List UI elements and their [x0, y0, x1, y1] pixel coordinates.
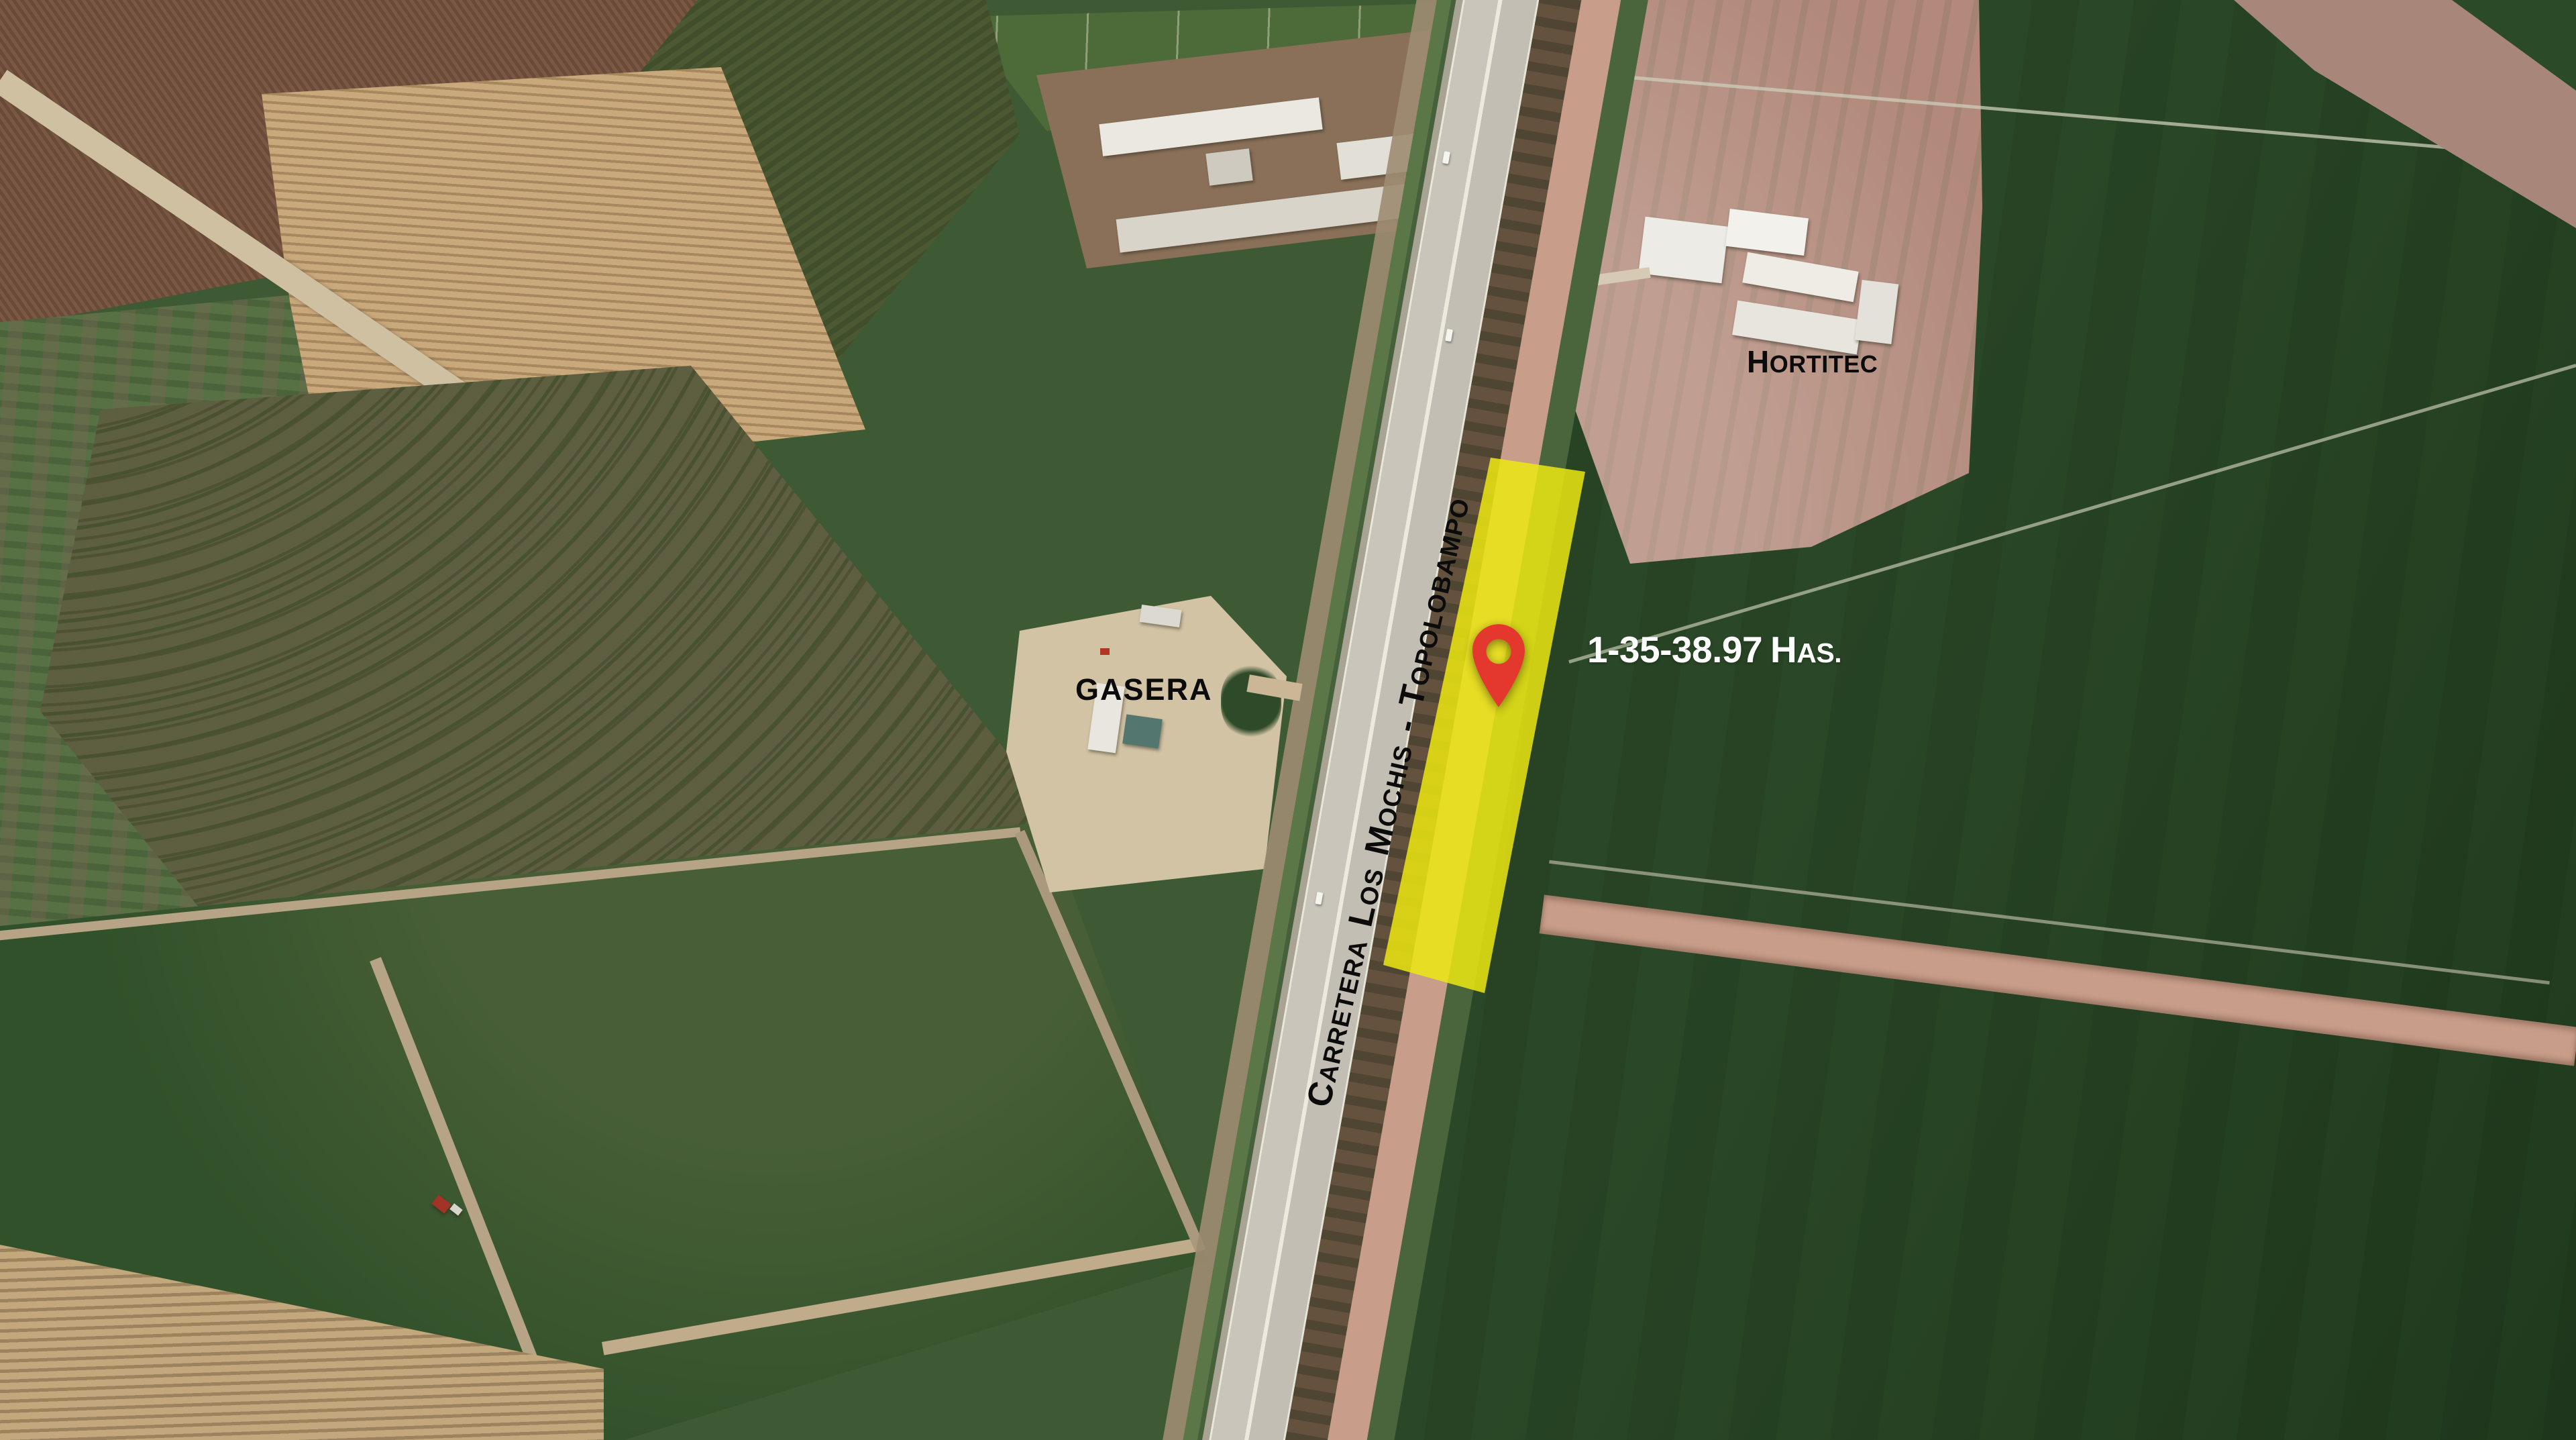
aerial-map: CARRETERA LOS MOCHIS - TOPOLOBAMPO HORTI…	[0, 0, 2576, 1440]
location-pin-icon[interactable]	[1472, 624, 1525, 707]
pin-shape	[1472, 624, 1525, 707]
hortitec-building	[1638, 217, 1728, 284]
warehouse	[1205, 148, 1252, 186]
red-vehicle	[1100, 648, 1110, 655]
poi-label-gasera: GASERA	[1075, 674, 1213, 705]
poi-label-hortitec: HORTITEC	[1747, 346, 1878, 377]
gasera-pond	[1122, 714, 1163, 748]
road-label-segment: -	[1407, 720, 1421, 735]
hortitec-building	[1855, 280, 1899, 344]
parcel-area-label: 1-35-38.97HAS.	[1587, 631, 1841, 668]
